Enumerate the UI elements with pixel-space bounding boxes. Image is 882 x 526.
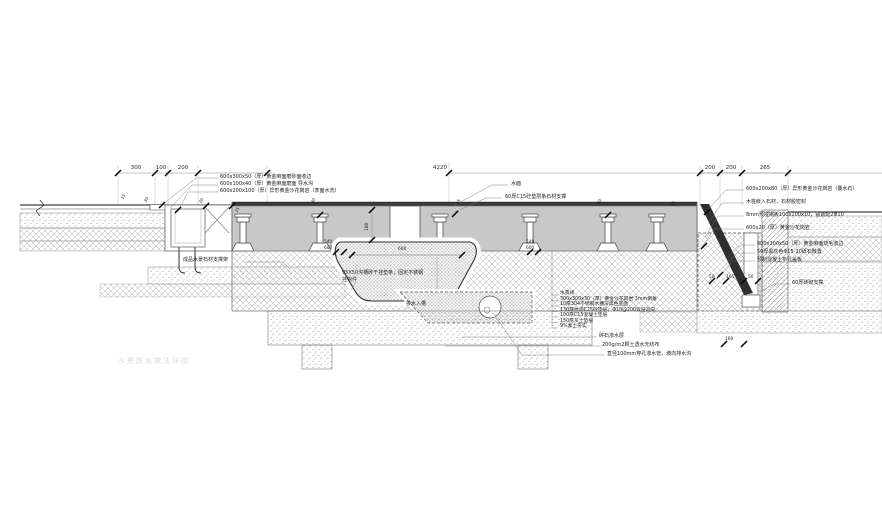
callout-perforated-pipe: 直径100mm穿孔渗水管，坡向排水沟: [607, 352, 691, 357]
callout-concrete-support: 60厚C15砼垫层条石材支撑: [505, 195, 566, 200]
dim-basin-left-600: 600: [324, 247, 332, 251]
callout-topright-2: 木桩嵌入石材，石材胶密封: [746, 200, 806, 205]
section-linework: [0, 0, 882, 526]
layer-compacted-soil: 9%素土夯实: [560, 325, 587, 330]
dim-basin-right-540: 540: [526, 241, 534, 245]
callout-gravel-layer: 碎石渗水层: [599, 334, 624, 339]
callout-basin-side-2: 挂钩件: [342, 278, 357, 283]
dim-pit-bottom-160: 160: [725, 338, 733, 342]
foundation-footing: [268, 311, 592, 369]
callout-brick-support: 60厚砖砌支撑: [792, 281, 823, 286]
dim-overall-4220: 4220: [407, 166, 447, 172]
callout-midright-2: 50厚黑灰色Φ15-20砾石散置: [757, 250, 822, 255]
callout-topleft-2: 600x100x40（厚）黄金麻面磨面 导水沟: [220, 182, 313, 187]
callout-topright-3: 8mm预埋钢板100x100x10，锚筋配2Φ10: [746, 213, 844, 218]
callout-geotextile: 200g/m2颗土透水无纺布: [602, 343, 659, 348]
callout-topleft-3: 600x200x100（厚）异形黄金沙花岗岩（表面水洗）: [220, 189, 340, 194]
faint-title-watermark: 水景跌水做法详图: [118, 356, 190, 366]
callout-drain-into-channel: 排水入槽: [406, 302, 426, 307]
dim-basin-left-540: 540: [324, 241, 332, 245]
dim-300: 300: [126, 166, 146, 172]
callout-water-surface: 水面: [511, 182, 521, 187]
callout-topright-4: 600x20（厚）黄金沙花岗岩: [746, 226, 810, 231]
callout-topleft-1: 600x300x50（厚）黄金麻面磨砂面收边: [220, 175, 311, 180]
dim-pit-50a: 50: [709, 276, 714, 280]
dim-pit-165: 165: [726, 276, 734, 280]
dim-200: 200: [173, 166, 193, 172]
dim-r200a: 200: [700, 166, 720, 172]
callout-midright-1: 600x300x50（厚）黄金麻面烧毛收边: [757, 242, 843, 247]
dim-r265: 265: [755, 166, 775, 172]
dim-basin-center-600: 600: [398, 248, 406, 252]
callout-basin-side-1: 95X50沟槽砖干挂垫条，固定不锈钢: [342, 271, 423, 276]
dim-column-180: 180: [366, 223, 370, 231]
dim-basin-right-600: 600: [526, 247, 534, 251]
callout-stone-support-frame: 成品水景石材支撑架: [183, 258, 228, 263]
cad-section-drawing: 300 100 200 4220 200 200 265 540 600 600…: [0, 0, 882, 526]
dim-100: 100: [151, 166, 171, 172]
callout-topright-1: 600x200x80（厚）异形黄金沙花岗岩（叠水石）: [746, 187, 857, 192]
dim-pit-50b: 50: [748, 276, 753, 280]
callout-midright-3: 预制混凝土布孔盖板: [757, 258, 802, 263]
dim-r200b: 200: [721, 166, 741, 172]
